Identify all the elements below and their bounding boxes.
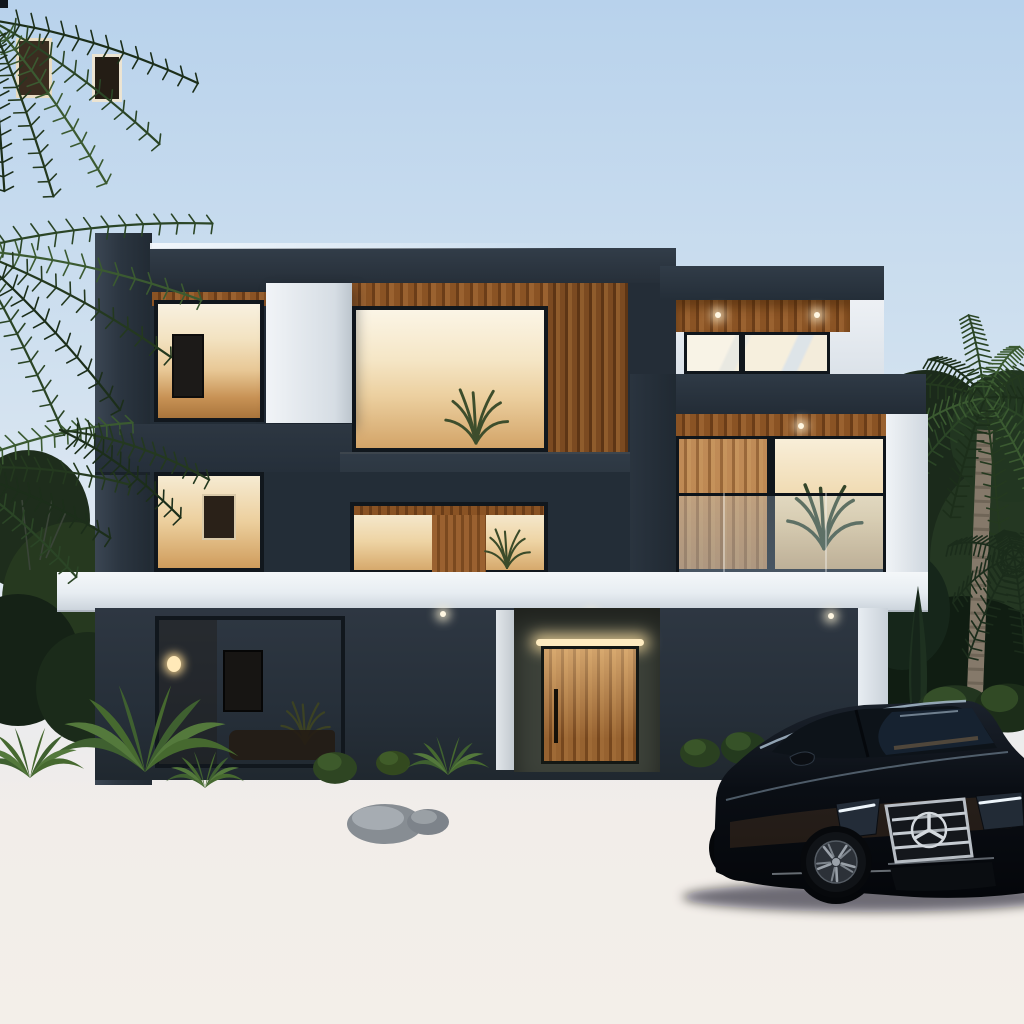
black-sedan	[0, 0, 1024, 1024]
car-grille	[886, 799, 972, 862]
front-wheel	[800, 826, 872, 898]
villa-scene	[0, 0, 1024, 1024]
car-greenhouse	[772, 706, 997, 758]
